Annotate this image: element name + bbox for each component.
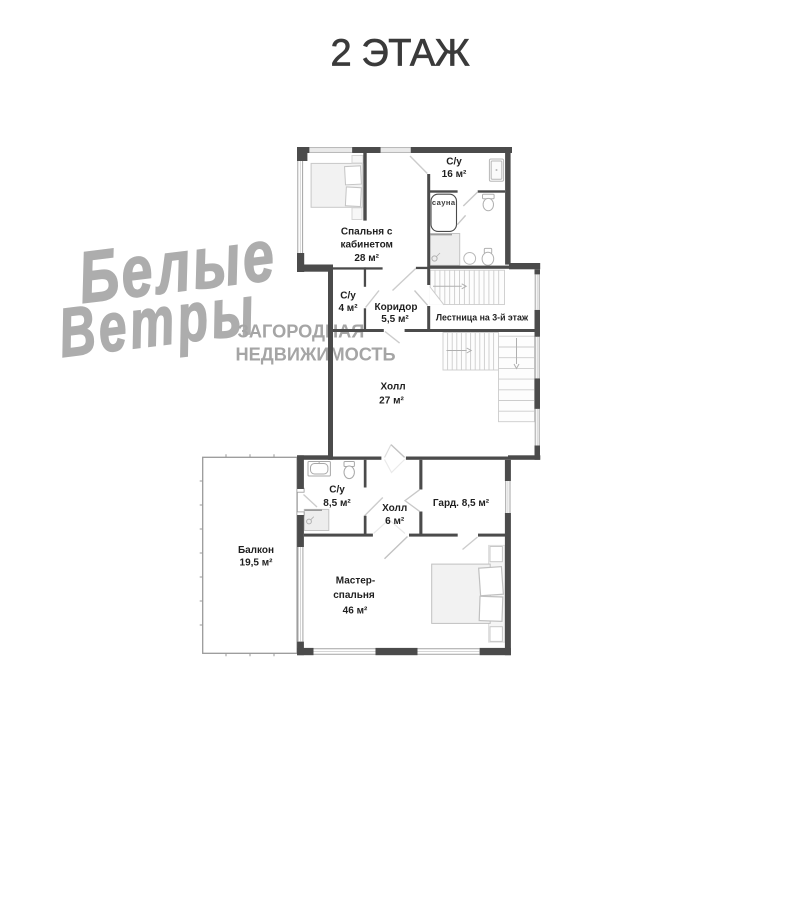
svg-text:Гард. 8,5 м²: Гард. 8,5 м²: [433, 498, 490, 509]
svg-text:Холл: Холл: [382, 503, 407, 514]
svg-text:16 м²: 16 м²: [442, 169, 467, 180]
svg-text:НЕДВИЖИМОСТЬ: НЕДВИЖИМОСТЬ: [236, 345, 396, 365]
svg-text:С/у: С/у: [340, 291, 356, 302]
svg-text:С/у: С/у: [329, 485, 345, 496]
svg-text:сауна: сауна: [432, 198, 456, 207]
svg-text:5,5 м²: 5,5 м²: [381, 314, 409, 325]
svg-text:28 м²: 28 м²: [354, 253, 379, 264]
svg-text:кабинетом: кабинетом: [340, 239, 393, 251]
svg-text:27 м²: 27 м²: [379, 396, 404, 407]
svg-text:Спальня с: Спальня с: [341, 227, 393, 238]
svg-text:Балкон: Балкон: [238, 545, 274, 556]
svg-text:6 м²: 6 м²: [385, 516, 405, 527]
svg-text:46 м²: 46 м²: [343, 606, 368, 617]
svg-text:19,5 м²: 19,5 м²: [240, 558, 274, 569]
svg-text:спальня: спальня: [333, 590, 375, 601]
svg-text:С/у: С/у: [446, 157, 462, 168]
svg-text:8,5 м²: 8,5 м²: [323, 498, 351, 509]
svg-text:4 м²: 4 м²: [338, 303, 358, 314]
svg-text:Коридор: Коридор: [374, 302, 417, 313]
svg-text:Мастер-: Мастер-: [336, 576, 375, 587]
svg-text:Лестница на 3-й этаж: Лестница на 3-й этаж: [436, 313, 529, 323]
svg-text:Холл: Холл: [380, 382, 405, 393]
svg-text:2 ЭТАЖ: 2 ЭТАЖ: [331, 33, 470, 75]
